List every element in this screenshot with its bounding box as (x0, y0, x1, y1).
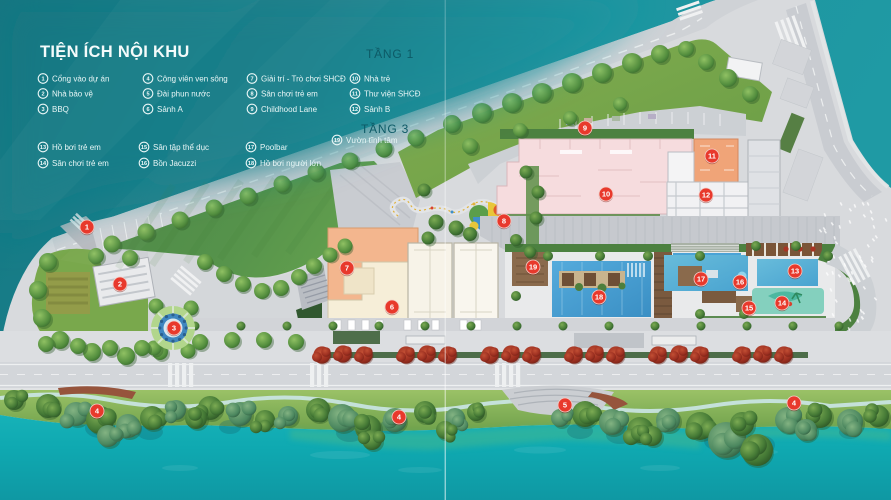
svg-text:6: 6 (390, 303, 394, 312)
svg-text:TIỆN ÍCH NỘI KHU: TIỆN ÍCH NỘI KHU (40, 42, 190, 61)
svg-text:7: 7 (250, 77, 253, 83)
svg-text:2: 2 (118, 280, 122, 289)
svg-text:Công viên ven sông: Công viên ven sông (157, 74, 228, 83)
svg-text:Vườn tĩnh tâm: Vườn tĩnh tâm (346, 136, 398, 145)
svg-text:10: 10 (602, 190, 610, 199)
svg-text:3: 3 (41, 107, 44, 113)
svg-text:14: 14 (40, 161, 47, 167)
svg-text:17: 17 (697, 275, 705, 284)
svg-text:3: 3 (172, 324, 176, 333)
svg-text:Sân chơi trẻ em: Sân chơi trẻ em (52, 159, 109, 168)
svg-text:1: 1 (41, 77, 44, 83)
svg-text:5: 5 (146, 92, 149, 98)
svg-text:Cổng vào dự án: Cổng vào dự án (52, 74, 109, 83)
svg-text:Hồ bơi trẻ em: Hồ bơi trẻ em (52, 143, 101, 152)
svg-text:18: 18 (595, 293, 603, 302)
svg-text:Poolbar: Poolbar (260, 143, 288, 152)
svg-text:8: 8 (502, 217, 506, 226)
svg-text:7: 7 (345, 264, 349, 273)
svg-text:12: 12 (352, 107, 358, 113)
svg-text:TẦNG 1: TẦNG 1 (366, 46, 414, 61)
svg-text:TẦNG 3: TẦNG 3 (361, 121, 409, 136)
svg-text:9: 9 (583, 124, 587, 133)
svg-text:Childhood Lane: Childhood Lane (261, 105, 318, 114)
svg-text:10: 10 (352, 77, 358, 83)
svg-text:Hồ bơi người lớn: Hồ bơi người lớn (260, 159, 321, 168)
svg-text:17: 17 (248, 145, 254, 151)
svg-text:12: 12 (702, 191, 710, 200)
svg-text:19: 19 (334, 138, 340, 144)
svg-text:Sân chơi trẻ em: Sân chơi trẻ em (261, 89, 318, 98)
svg-text:9: 9 (250, 107, 253, 113)
svg-text:19: 19 (529, 263, 537, 272)
svg-text:Giải trí - Trò chơi SHCĐ: Giải trí - Trò chơi SHCĐ (261, 74, 346, 83)
svg-text:11: 11 (708, 152, 716, 161)
svg-text:2: 2 (41, 92, 44, 98)
svg-text:Sân tập thể dục: Sân tập thể dục (153, 143, 209, 152)
svg-text:BBQ: BBQ (52, 105, 69, 114)
svg-text:5: 5 (563, 401, 567, 410)
svg-text:Đài phun nước: Đài phun nước (157, 89, 210, 98)
svg-text:13: 13 (40, 145, 46, 151)
svg-text:Bồn Jacuzzi: Bồn Jacuzzi (153, 159, 196, 168)
svg-text:15: 15 (745, 304, 753, 313)
svg-text:Nhà bảo vệ: Nhà bảo vệ (52, 89, 93, 98)
svg-text:Sảnh A: Sảnh A (157, 105, 183, 114)
svg-text:Thư viện SHCĐ: Thư viện SHCĐ (364, 89, 421, 98)
svg-text:15: 15 (141, 145, 147, 151)
svg-text:11: 11 (352, 92, 358, 98)
svg-text:16: 16 (141, 161, 147, 167)
svg-text:14: 14 (778, 299, 787, 308)
svg-text:8: 8 (250, 92, 253, 98)
svg-text:13: 13 (791, 267, 799, 276)
svg-text:Nhà trẻ: Nhà trẻ (364, 74, 391, 83)
svg-text:Sảnh B: Sảnh B (364, 105, 390, 114)
svg-text:18: 18 (248, 161, 254, 167)
svg-text:1: 1 (85, 223, 89, 232)
svg-text:6: 6 (146, 107, 149, 113)
svg-text:16: 16 (736, 278, 744, 287)
